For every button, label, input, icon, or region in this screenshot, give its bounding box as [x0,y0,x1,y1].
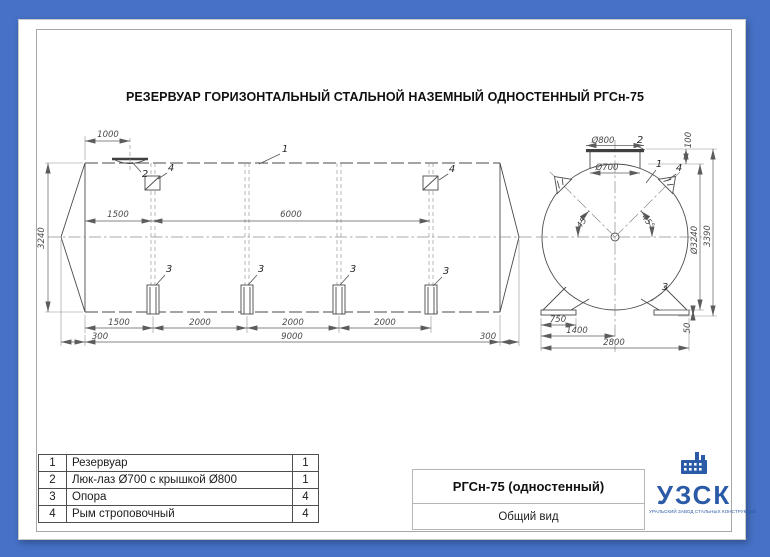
end-dimensions: 100 Ø3240 3390 50 750 1400 2800 [541,132,717,351]
table-row: 3 Опора 4 [39,489,319,506]
dim-label: 2000 [189,318,211,328]
seam-lines [151,163,433,312]
dim-label: 50 [683,323,693,334]
part-number: 1 [39,455,67,472]
tank-outline [48,163,532,312]
dim-label: 1400 [566,326,588,336]
dim-label: Ø700 [595,162,619,173]
dim-label: Ø3240 [689,226,700,255]
manhole-side [112,138,148,172]
dim-label: 1000 [97,130,119,140]
dim-label: 1500 [107,210,129,220]
dim-label: 300 [480,332,496,342]
callout-label: 3 [443,266,449,277]
part-qty: 4 [293,506,319,523]
uzsk-logo: УЗСК УРАЛЬСКИЙ ЗАВОД СТАЛЬНЫХ КОНСТРУКЦИ… [649,452,739,514]
callout-label: 3 [350,264,356,275]
dim-label: 100 [684,132,694,148]
callout-label: 2 [637,135,643,146]
part-number: 3 [39,489,67,506]
part-name: Люк-лаз Ø700 с крышкой Ø800 [67,472,293,489]
callout-label: 3 [662,282,668,293]
logo-text: УЗСК [649,482,739,508]
dim-label: 9000 [281,332,303,342]
table-row: 2 Люк-лаз Ø700 с крышкой Ø800 1 [39,472,319,489]
dim-label: 2000 [282,318,304,328]
part-number: 2 [39,472,67,489]
table-row: 1 Резервуар 1 [39,455,319,472]
logo-tagline: УРАЛЬСКИЙ ЗАВОД СТАЛЬНЫХ КОНСТРУКЦИЙ [649,509,739,514]
angle-label: 45° [639,213,656,231]
dim-label: 1500 [108,318,130,328]
dim-label: 2000 [374,318,396,328]
dim-label: 750 [550,315,566,325]
dim-label: 3240 [37,227,47,249]
side-dimensions: 1000 1500 6000 3240 1500 2000 2000 2000 [37,130,519,346]
title-block: РГСн-75 (одностенный) Общий вид [412,469,645,530]
dim-label: 6000 [280,210,302,220]
callout-label: 2 [142,169,148,180]
side-view: 1000 1500 6000 3240 1500 2000 2000 2000 [37,130,532,346]
parts-table: 1 Резервуар 1 2 Люк-лаз Ø700 с крышкой Ø… [38,454,319,523]
part-number: 4 [39,506,67,523]
view-name: Общий вид [413,504,644,529]
dim-label: 2800 [603,338,625,348]
part-name: Рым строповочный [67,506,293,523]
dim-label: 300 [92,332,108,342]
callout-label: 1 [282,144,288,155]
part-name: Опора [67,489,293,506]
model-designation: РГСн-75 (одностенный) [413,470,644,504]
dim-label: 3390 [703,225,713,247]
table-row: 4 Рым строповочный 4 [39,506,319,523]
factory-icon [678,452,710,476]
supports-side [147,285,437,314]
part-qty: 1 [293,472,319,489]
angle-label: 45° [575,213,592,231]
callout-label: 4 [676,163,682,174]
dim-label: Ø800 [591,135,615,146]
part-qty: 4 [293,489,319,506]
callout-label: 3 [258,264,264,275]
callout-label: 1 [656,159,662,170]
lifting-eyes-side [145,176,438,190]
part-qty: 1 [293,455,319,472]
callout-label: 3 [166,264,172,275]
callout-label: 4 [168,163,174,174]
part-name: Резервуар [67,455,293,472]
end-view: 45° 45° Ø800 Ø700 100 [536,132,717,352]
callout-label: 4 [449,164,455,175]
